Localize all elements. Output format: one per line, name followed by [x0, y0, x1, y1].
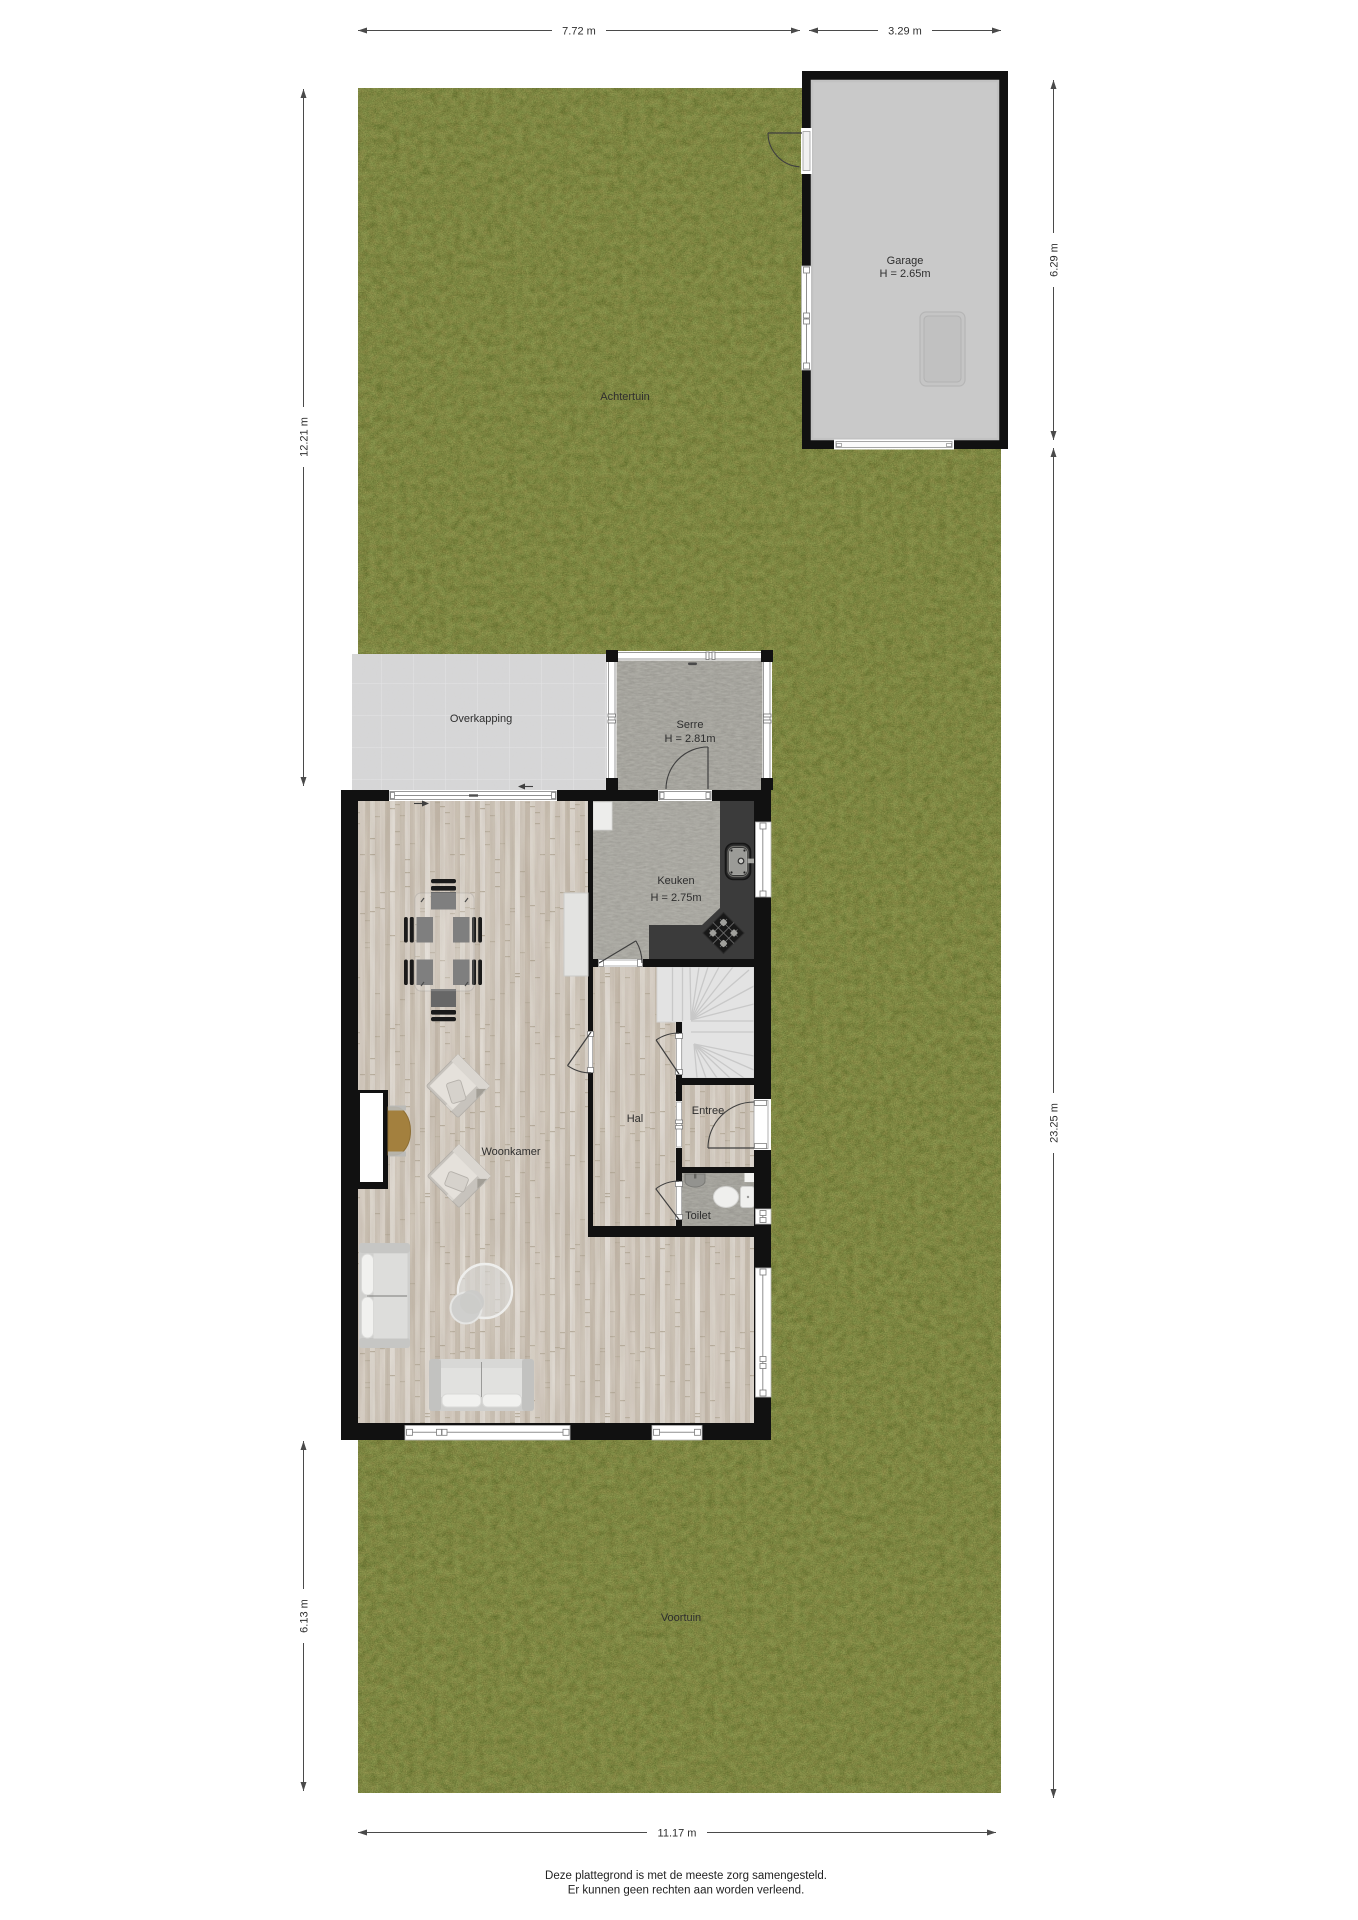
- svg-text:Garage: Garage: [887, 255, 924, 267]
- svg-text:H = 2.75m: H = 2.75m: [650, 892, 701, 904]
- svg-text:Keuken: Keuken: [657, 875, 694, 887]
- svg-text:12.21 m: 12.21 m: [299, 417, 311, 457]
- svg-text:Achtertuin: Achtertuin: [600, 391, 650, 403]
- svg-text:Woonkamer: Woonkamer: [481, 1146, 540, 1158]
- svg-text:11.17 m: 11.17 m: [658, 1828, 697, 1840]
- svg-text:H = 2.81m: H = 2.81m: [664, 733, 715, 745]
- svg-text:23.25 m: 23.25 m: [1049, 1103, 1061, 1143]
- svg-text:Entree: Entree: [692, 1105, 724, 1117]
- svg-text:H = 2.65m: H = 2.65m: [879, 268, 930, 280]
- svg-text:Hal: Hal: [627, 1113, 644, 1125]
- svg-text:6.29 m: 6.29 m: [1049, 243, 1061, 277]
- svg-text:3.29 m: 3.29 m: [888, 26, 922, 38]
- svg-text:Toilet: Toilet: [685, 1210, 711, 1222]
- svg-text:6.13 m: 6.13 m: [299, 1599, 311, 1633]
- svg-text:Serre: Serre: [677, 719, 704, 731]
- svg-text:Overkapping: Overkapping: [450, 713, 512, 725]
- svg-text:Er kunnen geen rechten aan wor: Er kunnen geen rechten aan worden verlee…: [568, 1885, 805, 1897]
- svg-text:Deze plattegrond is met de mee: Deze plattegrond is met de meeste zorg s…: [545, 1870, 827, 1882]
- svg-text:Voortuin: Voortuin: [661, 1612, 701, 1624]
- svg-text:7.72 m: 7.72 m: [562, 26, 596, 38]
